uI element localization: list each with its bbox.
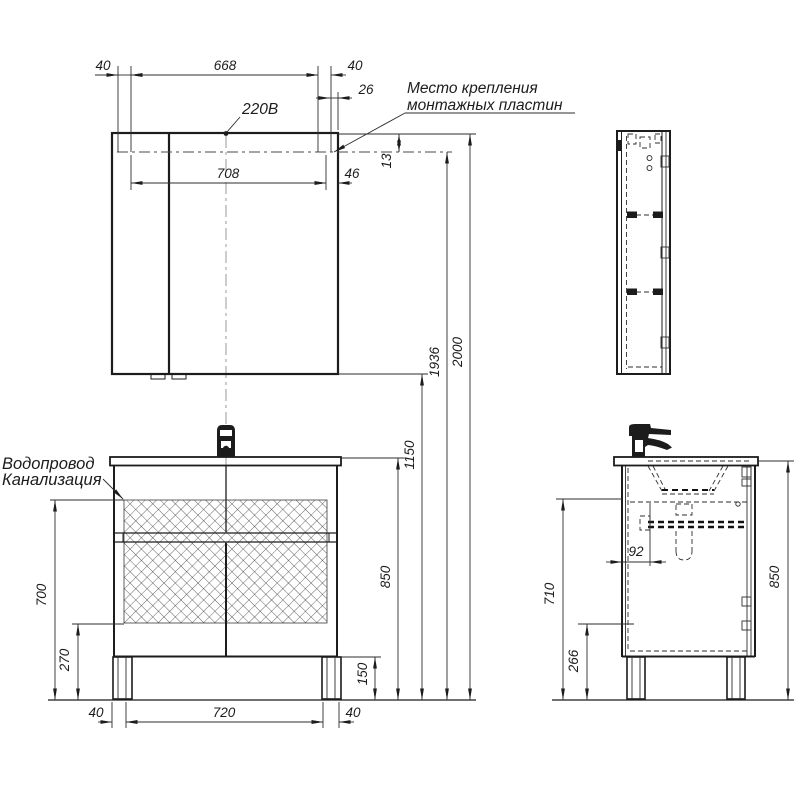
dim-mirror-left-40: 40 xyxy=(95,58,111,73)
technical-drawing-page: 220В Место крепления монтажных пластин 4… xyxy=(0,0,800,800)
mirror-cabinet-front-view: 220В xyxy=(112,101,452,465)
faucet-side-body-gap xyxy=(635,440,643,452)
dim-height-850: 850 xyxy=(378,565,393,588)
dim-height-2000: 2000 xyxy=(450,336,465,368)
dim-bottom-left-40: 40 xyxy=(88,705,104,720)
dim-legs-150: 150 xyxy=(355,662,370,685)
faucet-front xyxy=(217,425,235,457)
vanity-side-view xyxy=(552,424,794,700)
dim-mirror-inset-26: 26 xyxy=(357,82,374,97)
shelf-2 xyxy=(627,289,663,296)
mounting-callout-line2: монтажных пластин xyxy=(407,97,563,114)
dim-side-850: 850 xyxy=(767,565,782,588)
dim-mirror-span-668: 668 xyxy=(214,58,237,73)
dim-zone-top-700: 700 xyxy=(34,583,49,606)
sewer-label: Канализация xyxy=(2,471,102,489)
side-view-dimensions: 92 710 266 850 xyxy=(542,461,794,700)
height-dimensions: 2000 1936 1150 850 150 xyxy=(338,134,476,700)
mounting-bracket-side xyxy=(617,140,623,151)
side-hinge-marks xyxy=(742,467,751,630)
vanity-left-dimensions: 700 270 xyxy=(34,500,124,700)
power-label: 220В xyxy=(241,101,278,118)
vanity-bottom-dimensions: 40 720 40 xyxy=(88,702,361,728)
dim-mirror-right-40: 40 xyxy=(347,58,363,73)
sink-hidden-profile xyxy=(630,466,748,530)
dim-height-1150: 1150 xyxy=(402,440,417,470)
mounting-callout-line1: Место крепления xyxy=(407,80,538,97)
dim-height-710: 710 xyxy=(542,582,557,605)
dim-mirror-span-708: 708 xyxy=(217,166,240,181)
vanity-legs-side xyxy=(627,657,745,699)
dim-mirror-gap-46: 46 xyxy=(344,166,360,181)
mirror-cabinet-side-view xyxy=(617,131,671,374)
dim-height-1936: 1936 xyxy=(427,346,442,377)
dim-clearance-266: 266 xyxy=(566,649,581,673)
power-leader-line xyxy=(227,117,240,132)
dim-bottom-span-720: 720 xyxy=(213,705,236,720)
dim-zone-bottom-270: 270 xyxy=(57,648,72,672)
callout-leader xyxy=(334,113,405,152)
dim-mirror-drop-13: 13 xyxy=(379,153,394,169)
dim-drain-92: 92 xyxy=(628,544,644,559)
mirror-top-dimensions: 40 668 40 26 708 46 13 xyxy=(95,58,410,190)
hinge-hardware-top xyxy=(628,134,661,171)
vanity-legs-front xyxy=(113,657,341,699)
dim-bottom-right-40: 40 xyxy=(345,705,361,720)
installation-drawing: 220В Место крепления монтажных пластин 4… xyxy=(0,0,800,800)
siphon-trap-hidden xyxy=(676,531,692,560)
shelf-1 xyxy=(627,212,663,219)
